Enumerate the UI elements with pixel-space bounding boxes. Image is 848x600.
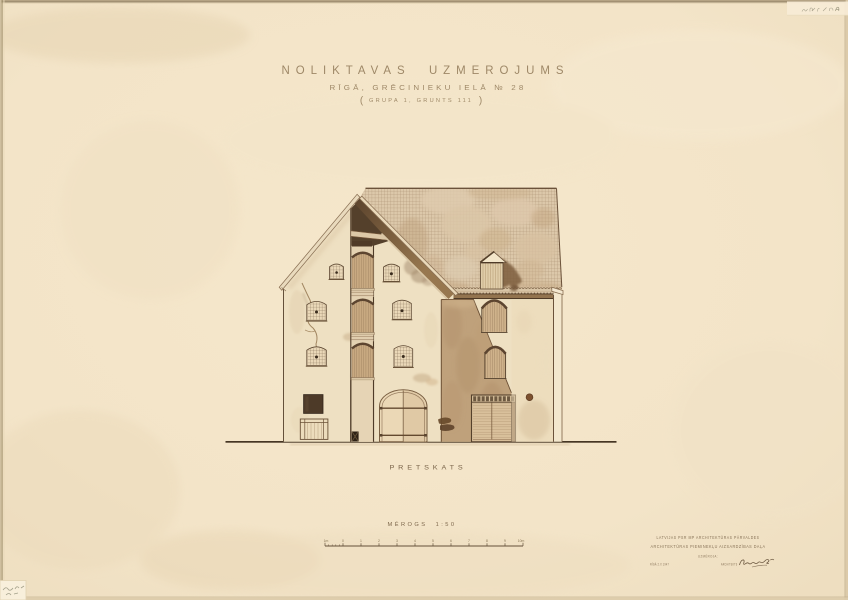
svg-text:9: 9 — [504, 539, 506, 543]
svg-text:RĪGĀ 2.X 1947: RĪGĀ 2.X 1947 — [650, 563, 669, 567]
svg-text:LATVIJAS PSR MP ARCHITEKTŪRAS: LATVIJAS PSR MP ARCHITEKTŪRAS PĀRVALDES — [657, 534, 760, 540]
svg-text:5: 5 — [432, 539, 434, 543]
svg-text:6: 6 — [450, 539, 452, 543]
svg-text:ARCHITEKTS: ARCHITEKTS — [721, 563, 738, 567]
svg-text:0: 0 — [342, 539, 344, 543]
svg-text:7: 7 — [468, 539, 470, 543]
svg-text:10m: 10m — [518, 539, 525, 543]
svg-text:1m: 1m — [324, 539, 329, 543]
svg-text:RĪGĀ, GRĒCINIEKU IELĀ № 28: RĪGĀ, GRĒCINIEKU IELĀ № 28 — [330, 83, 527, 92]
svg-text:): ) — [479, 96, 482, 107]
svg-text:ARCHITEKTŪRAS PIEMINEKĻU AIZSA: ARCHITEKTŪRAS PIEMINEKĻU AIZSARDZĪBAS DA… — [651, 543, 766, 549]
svg-text:1: 1 — [360, 539, 362, 543]
svg-text:4: 4 — [414, 539, 416, 543]
svg-text:UZMĒROJA:: UZMĒROJA: — [698, 555, 718, 559]
svg-text:8: 8 — [486, 539, 488, 543]
svg-text:2: 2 — [378, 539, 380, 543]
svg-text:NOLIKTAVAS UZMĒROJUMS: NOLIKTAVAS UZMĒROJUMS — [282, 65, 570, 77]
svg-text:MĒROGS 1:50: MĒROGS 1:50 — [388, 521, 457, 528]
svg-text:PRETSKATS: PRETSKATS — [390, 465, 467, 472]
svg-text:3: 3 — [396, 539, 398, 543]
svg-text:GRUPA 1, GRUNTS 111: GRUPA 1, GRUNTS 111 — [369, 98, 473, 104]
